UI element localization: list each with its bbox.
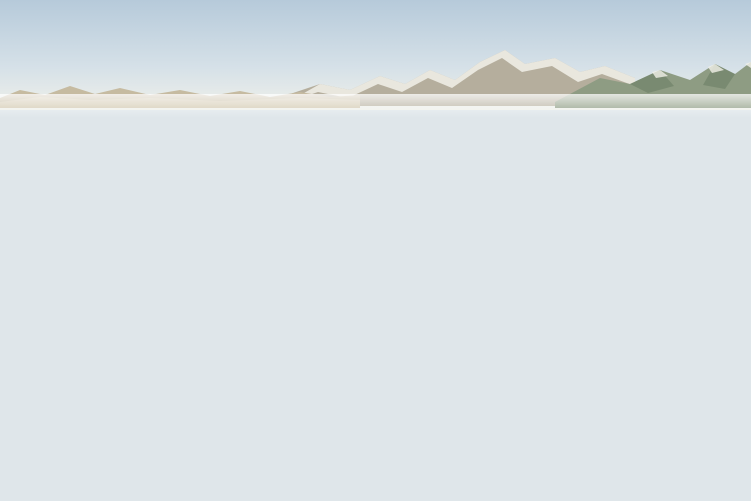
scene-svg (0, 0, 751, 501)
haze-band (0, 94, 751, 118)
aerial-render-image (0, 0, 751, 501)
